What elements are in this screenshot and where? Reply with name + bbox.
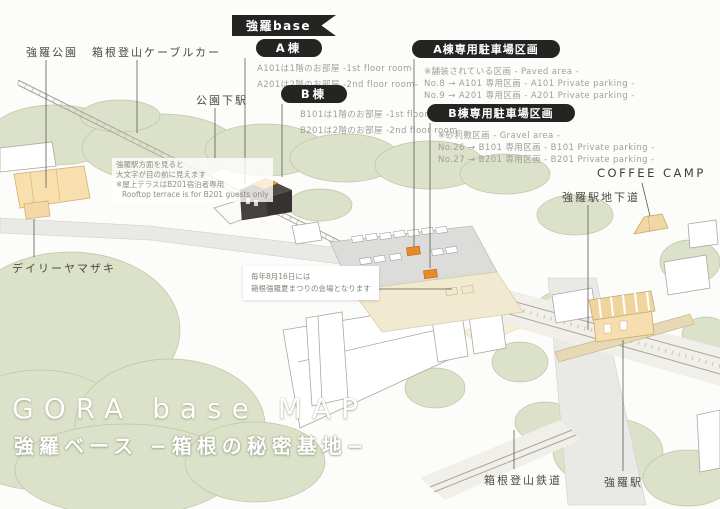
banner-title: 強羅base (246, 17, 311, 34)
label-koen-shimo-station: 公園下駅 (196, 92, 248, 108)
rooftop-note-line-3: ※屋上テラスはB201宿泊者専用 (116, 180, 269, 190)
label-cable-car: 箱根登山ケーブルカー (92, 44, 221, 60)
label-tozan-railway: 箱根登山鉄道 (484, 472, 562, 488)
building-b-title: B棟 (301, 86, 327, 102)
label-gora-underpass: 強羅駅地下道 (562, 189, 640, 205)
page-subtitle: 強羅ベース −箱根の秘密基地− (14, 430, 368, 459)
parking-a-line-1: ※舗装されている区画 - Paved area - (424, 65, 579, 77)
gora-station-building (589, 291, 655, 342)
page-title: GORA base MAP (12, 392, 368, 425)
parking-spot-a-highlight (407, 246, 421, 256)
building-a-line-1: A101は1階のお部屋 -1st floor room- (257, 62, 415, 74)
label-gora-park: 強羅公園 (26, 44, 78, 60)
parking-a-line-2: No.8 → A101 専用区画 - A101 Private parking … (424, 77, 635, 89)
rooftop-note-line-4: Rooftop terrace is for B201 guests only (116, 190, 269, 200)
label-daily-yamazaki: デイリーヤマザキ (12, 260, 116, 276)
label-coffee-camp: COFFEE CAMP (597, 166, 706, 180)
festival-note-line-1: 毎年8月16日には (251, 271, 371, 283)
daily-yamazaki-building (24, 201, 50, 219)
rooftop-note-line-2: 大文字が目の前に見えます (116, 170, 269, 180)
map-banner: 強羅base (232, 15, 336, 36)
label-building-a: A棟 (256, 39, 322, 57)
parking-b-line-1: ※砂利敷区画 - Gravel area - (438, 129, 560, 141)
label-building-b: B棟 (281, 85, 347, 103)
parking-spot-b-highlight (424, 269, 438, 279)
parking-b-line-2: No.26 → B101 専用区画 - B101 Private parking… (438, 141, 655, 153)
parking-b-title: B棟専用駐車場区画 (448, 105, 553, 121)
label-parking-b: B棟専用駐車場区画 (427, 104, 575, 122)
label-parking-a: A棟専用駐車場区画 (412, 40, 560, 58)
gora-base-map-page: 強羅base A棟 A101は1階のお部屋 -1st floor room- A… (0, 0, 720, 509)
festival-note-line-2: 箱根強羅夏まつりの会場となります (251, 283, 371, 295)
parking-a-title: A棟専用駐車場区画 (433, 41, 539, 57)
parking-b-line-3: No.27 → B201 専用区画 - B201 Private parking… (438, 153, 655, 165)
festival-note: 毎年8月16日には 箱根強羅夏まつりの会場となります (243, 266, 379, 300)
rooftop-note-line-1: 強羅駅方面を見ると (116, 160, 269, 170)
building-a-title: A棟 (276, 40, 302, 56)
rooftop-note: 強羅駅方面を見ると 大文字が目の前に見えます ※屋上テラスはB201宿泊者専用 … (112, 158, 273, 202)
label-gora-station: 強羅駅 (604, 474, 643, 490)
parking-a-line-3: No.9 → A201 専用区画 - A201 Private parking … (424, 89, 635, 101)
